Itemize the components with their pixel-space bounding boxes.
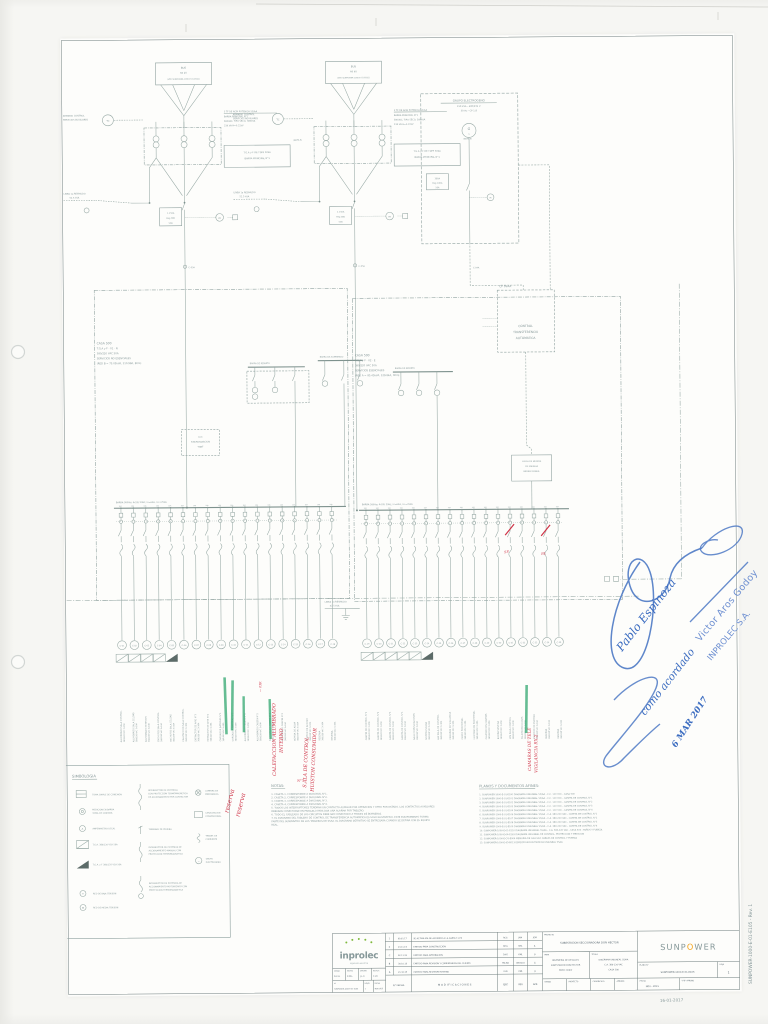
tap-rating: 10A xyxy=(448,506,452,509)
svg-text:380/220 VAC 3x10A: 380/220 VAC 3x10A xyxy=(452,720,455,740)
panel-right: CASA 500 T.G.A y F - 02 - E 380/220 VAC … xyxy=(352,296,622,601)
svg-text:Wh: Wh xyxy=(388,216,391,218)
svg-text:EJEC: EJEC xyxy=(503,983,508,986)
svg-text:VIGILANCIA RX-2: VIGILANCIA RX-2 xyxy=(533,734,538,773)
svg-text:380/220 VAC 3x10A: 380/220 VAC 3x10A xyxy=(135,723,138,743)
svg-text:Reg 380: Reg 380 xyxy=(166,218,175,220)
tap-rating: 10A xyxy=(330,503,334,506)
drawing-title: DIAGRAMA UNILINEAL SS/AA xyxy=(599,958,629,961)
drawing-sheet: BUS 66 kV (VER SUNPOWER-1000-E-01-E001) … xyxy=(60,33,742,996)
tap-rating: 10A xyxy=(400,506,404,509)
svg-text:21.10.15: 21.10.15 xyxy=(398,972,408,974)
svg-text:R.C.G.: R.C.G. xyxy=(334,976,341,978)
bus-name: BUS xyxy=(351,64,357,68)
feeder-id: C-18 xyxy=(330,644,335,646)
svg-text:0: 0 xyxy=(389,946,391,949)
feeder-id: C-05 xyxy=(169,645,174,647)
svg-text:50A: 50A xyxy=(435,186,440,189)
feeder-load-label: SISTEMA SCADA xyxy=(425,722,428,740)
bus-right-label: BARRA 380Vac 4x50/ 50Hz, In=63A, Icc=25k… xyxy=(362,503,413,506)
svg-text:380/220 VAC 3x10A: 380/220 VAC 3x10A xyxy=(148,722,151,742)
feeder-load-label: CASETA DE CONTROL N°3 xyxy=(389,711,392,740)
svg-text:JGM: JGM xyxy=(532,937,537,939)
feeder-load-label: ENCHUFES SALA CONTROL xyxy=(157,712,160,742)
svg-text:JL: JL xyxy=(533,954,537,956)
cable-tag: C-05A xyxy=(359,265,366,268)
svg-text:LINEA 1a RESPALDO: LINEA 1a RESPALDO xyxy=(325,600,347,603)
svg-text:50A: 50A xyxy=(339,220,344,223)
tap-rating: 10A xyxy=(156,504,160,507)
scan-artifact-line xyxy=(256,4,768,7)
feeder-load-label: ALUMBRADO SALA CELDAS xyxy=(132,712,135,742)
handwritten-reserva-2: reserva xyxy=(234,792,248,818)
svg-text:PROYECTO: PROYECTO xyxy=(544,934,554,936)
svg-text:PROTECCION TERMOMAGNETICA: PROTECCION TERMOMAGNETICA xyxy=(149,889,184,892)
svg-text:380/220 VAC 3x10A: 380/220 VAC 3x10A xyxy=(334,721,337,741)
tap-rating: 10A xyxy=(496,506,500,509)
feeder-load-label: TELEPROTECCIONES xyxy=(521,716,524,739)
svg-text:N° FECHA: N° FECHA xyxy=(393,984,405,987)
svg-text:380/220 VAC 3x10A: 380/220 VAC 3x10A xyxy=(464,720,467,740)
svg-text:FECHA: FECHA xyxy=(640,980,647,983)
planos-title: PLANOS Y DOCUMENTOS AFINES: xyxy=(479,784,539,788)
generator-cable-tag: C-04A xyxy=(473,266,480,269)
svg-text:1.150A: 1.150A xyxy=(167,212,175,215)
svg-text:Reg 100A: Reg 100A xyxy=(432,182,443,185)
feeder-id: C-07 xyxy=(194,645,199,647)
control-cabinet-label: ARMARIO CONTROL xyxy=(233,113,255,116)
svg-text:380/220 VAC 3x10A: 380/220 VAC 3x10A xyxy=(123,723,126,743)
svg-text:380/220 VAC 3x10A: 380/220 VAC 3x10A xyxy=(321,721,324,741)
tap-rating: 10A xyxy=(119,505,123,508)
svg-text:JL: JL xyxy=(533,962,537,964)
svg-text:INTERNO: INTERNO xyxy=(279,728,285,754)
svg-text:SUNPOWER: SUNPOWER xyxy=(660,942,717,952)
svg-text:AMPERIMETRO LOCAL: AMPERIMETRO LOCAL xyxy=(92,827,116,830)
svg-text:380/220 VAC 3x10A: 380/220 VAC 3x10A xyxy=(197,722,200,742)
plano-line: 12. SUNPOWER-1000-E-CG-E004 MEMORIA DE C… xyxy=(480,837,578,841)
note-line: REAL. xyxy=(271,824,278,827)
tap-rating: 10A xyxy=(520,506,524,509)
tga-box xyxy=(394,144,460,167)
handwritten-calefaccion: CALEFACCION ALUMBRADO xyxy=(271,703,278,776)
notes-section: NOTAS: 1. CASETA 1, CORRESPONDE A DIAGON… xyxy=(271,783,435,827)
svg-text:380/220 VAC 3x10A: 380/220 VAC 3x10A xyxy=(548,719,551,739)
tap-rating: 10A xyxy=(532,505,536,508)
feeder-load-label: ILUMINACION PERIMETRAL xyxy=(473,710,476,740)
svg-text:KLB: KLB xyxy=(504,971,508,973)
svg-text:ANGULO: ANGULO xyxy=(516,961,525,964)
svg-text:ACCIONAMIENTO MANUAL CON: ACCIONAMIENTO MANUAL CON xyxy=(149,849,182,852)
svg-text:380/220 VAC 3x10A: 380/220 VAC 3x10A xyxy=(428,720,431,740)
svg-text:30.10.15: 30.10.15 xyxy=(398,963,408,965)
tap-rating: 10A xyxy=(243,504,247,507)
feeder-load-label: ALUMBRADO CASETA N°2 xyxy=(256,713,259,742)
feeder-id: C-24 xyxy=(425,643,430,645)
feeder-load-label: CALEFACCION CASETAS xyxy=(485,713,488,739)
svg-text:C: C xyxy=(389,954,391,957)
svg-text:T: T xyxy=(82,893,84,896)
svg-text:APR: APR xyxy=(533,983,538,986)
punch-hole xyxy=(12,656,25,669)
feeder-id: C-30 xyxy=(497,643,502,645)
svg-text:MEDICION EN BARRA: MEDICION EN BARRA xyxy=(92,808,114,811)
svg-text:NOV.2015: NOV.2015 xyxy=(375,988,383,990)
tap-rating: 10A xyxy=(218,504,222,507)
svg-text:09.01.17: 09.01.17 xyxy=(398,938,408,940)
tap-rating: 10A xyxy=(472,506,476,509)
feeder-load-label: CAMARAS DE VIGILANCIA xyxy=(449,711,452,739)
respaldo-label: LINEA 1a RESPALDO xyxy=(233,191,255,194)
svg-text:G: G xyxy=(468,127,471,131)
svg-text:CONTROL: CONTROL xyxy=(518,324,533,328)
feeder-id: C-04 xyxy=(157,645,162,647)
tga-filled-symbol xyxy=(421,652,433,660)
svg-text:380/220 VAC 3x10A: 380/220 VAC 3x10A xyxy=(476,720,479,740)
svg-text:CONVENCIONAL: CONVENCIONAL xyxy=(205,815,222,818)
svg-text:380/220 VAC 3x10A: 380/220 VAC 3x10A xyxy=(368,721,371,741)
feeder-id: C-23 xyxy=(413,643,418,645)
svg-text:LCC: LCC xyxy=(198,436,203,439)
transformer-branch-1: BUS 66 kV (VER SUNPOWER-1000-E-01-E001) … xyxy=(62,62,303,271)
tap-rating: 10A xyxy=(544,505,548,508)
svg-text:TRANSF. DE: TRANSF. DE xyxy=(206,834,218,837)
feeder-id: C-29 xyxy=(485,643,490,645)
handwritten-camaras: CAMARAS DE TELE xyxy=(527,728,532,771)
tap-rating: 10A xyxy=(388,507,392,510)
nota-tag: (NOTA 5) xyxy=(463,137,472,140)
svg-text:CON PROTECCION TERMOMAGNETICA: CON PROTECCION TERMOMAGNETICA xyxy=(148,792,188,795)
cable-tag: C-05A xyxy=(189,266,196,269)
tap-rating: 10A xyxy=(268,504,272,507)
svg-text:BIDIRECCIONAL: BIDIRECCIONAL xyxy=(524,470,541,473)
tga-filled-symbol xyxy=(166,654,178,662)
feeder-id: C-09 xyxy=(219,645,224,647)
svg-text:BARRA DE REPARTO: BARRA DE REPARTO xyxy=(395,367,415,370)
feeder-id: C-27 xyxy=(461,643,466,645)
svg-text:PROTECCION TERMOMAGNETICA: PROTECCION TERMOMAGNETICA xyxy=(149,853,184,856)
svg-text:52.5 kVA: 52.5 kVA xyxy=(239,195,249,198)
svg-text:A: A xyxy=(82,828,84,831)
svg-text:380/220 VAC 3x10A: 380/220 VAC 3x10A xyxy=(440,720,443,740)
feeder-id: C-25 xyxy=(437,643,442,645)
svg-text:380/220 VAC 3x10A: 380/220 VAC 3x10A xyxy=(380,721,383,741)
svg-text:PROYECTO: PROYECTO xyxy=(569,981,579,983)
svg-text:PARA: PARA xyxy=(544,953,549,956)
feeder-id: C-08 xyxy=(206,645,211,647)
svg-text:150 kVA - 400/231 V: 150 kVA - 400/231 V xyxy=(457,105,481,108)
svg-text:C.A. 380-220 VAC: C.A. 380-220 VAC xyxy=(604,963,623,966)
feeder-load-label: ENCHUFES SALA CELDAS xyxy=(169,714,172,742)
svg-text:BARRA PRINCIPAL N°1: BARRA PRINCIPAL N°1 xyxy=(415,156,441,159)
svg-text:JL: JL xyxy=(533,946,537,948)
svg-text:(RED A = 85.45kVA, 129.84A, 30: (RED A = 85.45kVA, 129.84A, 30m) xyxy=(355,373,400,377)
svg-text:BARRA DE ALUMBRADO: BARRA DE ALUMBRADO xyxy=(320,355,344,358)
svg-text:2.150A: 2.150A xyxy=(337,210,345,213)
handwritten-03r: — 03R xyxy=(258,681,262,692)
cp-ssaa-tag: CP SSAA xyxy=(499,284,511,288)
svg-text:66 kV: 66 kV xyxy=(350,70,357,73)
feeder-id: C-01 xyxy=(120,645,125,647)
svg-text:APROBO: APROBO xyxy=(360,969,368,972)
tap-rating: 10A xyxy=(508,506,512,509)
svg-text:02.11.15: 02.11.15 xyxy=(398,955,408,957)
feeder-load-label: CASETA DE CONTROL N°2 xyxy=(377,711,380,740)
feeder-id: C-32 xyxy=(521,642,526,644)
tap-rating: 10A xyxy=(317,503,321,506)
handwritten-sp: SP. xyxy=(504,550,510,555)
svg-text:JAM: JAM xyxy=(517,936,522,939)
svg-text:RCG: RCG xyxy=(503,937,508,939)
tap-rating: 10A xyxy=(424,506,428,509)
svg-text:~: ~ xyxy=(198,860,200,863)
svg-text:N°: N° xyxy=(334,983,336,985)
generator-section: GRUPO ELECTROGENO 150 kVA - 400/231 V 50… xyxy=(421,93,551,291)
svg-text:T.G.A y F - 01 - N: T.G.A y F - 01 - N xyxy=(97,346,118,350)
svg-text:PATIO 220kV: PATIO 220kV xyxy=(559,969,573,972)
svg-text:B: B xyxy=(389,962,391,965)
feeder-id: C-11 xyxy=(244,644,249,646)
transformer-branch-1: BUS 66 kV (VER SUNPOWER-1000-E-01-E001) … xyxy=(232,60,473,269)
feeder-load-label: CASETA DE CONTROL N°1 xyxy=(365,711,368,740)
svg-text:PALMA: PALMA xyxy=(502,962,509,965)
feeder-id: C-17 xyxy=(318,644,323,646)
feeder-id: C-35 xyxy=(557,642,562,644)
svg-text:1: 1 xyxy=(728,970,730,974)
feeder-load-label: BOMBA DE AGUA xyxy=(293,722,296,741)
svg-text:JL: JL xyxy=(533,971,537,973)
control-cabinet-label: ARMARIO CONTROL xyxy=(63,114,85,117)
feeder-load-label: RESERVA xyxy=(318,730,321,740)
svg-text:(VER SUNPOWER-1000-E-01-E001): (VER SUNPOWER-1000-E-01-E001) xyxy=(337,77,370,79)
svg-text:380/220 VAC 3x10A: 380/220 VAC 3x10A xyxy=(296,721,299,741)
svg-text:380/220 VAC 3x10A: 380/220 VAC 3x10A xyxy=(512,720,515,740)
feeder-id: C-20 xyxy=(377,643,382,645)
svg-text:CANALIZACION: CANALIZACION xyxy=(205,811,221,814)
svg-text:380/220 VAC 3x10A: 380/220 VAC 3x10A xyxy=(259,722,262,742)
feeder-id: C-15 xyxy=(293,644,298,646)
svg-text:ACCIONAMIENTO MOTORIZADO CON: ACCIONAMIENTO MOTORIZADO CON xyxy=(149,885,188,888)
svg-text:(VER SUNPOWER-1000-E-01-E001): (VER SUNPOWER-1000-E-01-E001) xyxy=(167,79,200,81)
plano-line: 13. SUNPOWER-1000-E-05-E013 ESPECIFICACI… xyxy=(480,841,564,845)
svg-text:M: M xyxy=(82,907,84,910)
svg-text:DIBUJO: DIBUJO xyxy=(545,981,552,983)
svg-text:380/220 VAC 3x10A: 380/220 VAC 3x10A xyxy=(172,722,175,742)
punch-hole xyxy=(12,346,25,359)
svg-text:1:20: 1:20 xyxy=(373,976,378,978)
cp-ssaa-box: CP SSAA CONTROL TRANSFERENCIA AUTOMATICA xyxy=(482,284,555,456)
svg-text:52.5 kVA: 52.5 kVA xyxy=(330,604,340,607)
svg-text:SUBESTACION DON HECTOR: SUBESTACION DON HECTOR xyxy=(551,964,581,967)
svg-text:DIBUJO: DIBUJO xyxy=(334,970,340,972)
tap-rating: 10A xyxy=(280,503,284,506)
svg-text:CUADRICULA: CUADRICULA xyxy=(593,980,606,983)
tap-rating: 10A xyxy=(255,504,259,507)
svg-text:RED DE BAJA TENSION: RED DE BAJA TENSION xyxy=(93,892,117,895)
svg-text:SERVICIOS AUXILIARES: SERVICIOS AUXILIARES xyxy=(233,117,259,120)
feeder-load-label: A/A SALA DE CONTROL xyxy=(437,714,440,740)
tap-rating: 10A xyxy=(364,507,368,510)
legend-title: SIMBOLOGIA xyxy=(72,773,96,778)
svg-text:380/220 VAC 3x10A: 380/220 VAC 3x10A xyxy=(247,722,250,742)
tap-rating: 10A xyxy=(556,505,560,508)
feeder-load-label: RESERVA xyxy=(557,728,560,738)
svg-text:(RED B = 73.05kVA, 110.98A, 80: (RED B = 73.05kVA, 110.98A, 80m) xyxy=(97,361,142,365)
svg-text:V°B° APROBO: V°B° APROBO xyxy=(682,979,695,982)
svg-text:SINCRONIZACION: SINCRONIZACION xyxy=(191,440,211,443)
svg-text:380/220 VAC 3x10A: 380/220 VAC 3x10A xyxy=(222,722,225,742)
project-title: SUBESTACION SECCIONADORA DON HECTOR xyxy=(560,940,619,944)
bus-left-label: BARRA 380Vac 4x50/ 50Hz, In=63A, Icc=25k… xyxy=(116,501,167,504)
svg-text:SERVICIOS ESENCIALES: SERVICIOS ESENCIALES xyxy=(355,368,385,372)
feeder-load-label: EXTRACTOR DE AIRE N°2 xyxy=(207,713,210,741)
scanned-drawing-page: { "meta": { "corner_date": "16-01-2017",… xyxy=(0,0,768,1024)
feeder-id: C-16 xyxy=(306,644,311,646)
svg-text:T.G.A y F DE TDPF 50kA: T.G.A y F DE TDPF 50kA xyxy=(244,151,272,154)
revision-description: EMITIDO PARA REVISION INTERNA xyxy=(414,970,450,973)
tap-rating: 10A xyxy=(305,503,309,506)
feeder-load-label: EXTRACTOR DE AIRE N°1 xyxy=(194,714,197,742)
svg-text:FECHA: FECHA xyxy=(375,982,381,985)
tap-rating: 10A xyxy=(168,504,172,507)
svg-text:DE ENERGIA: DE ENERGIA xyxy=(525,465,538,468)
feeders-right: 10AC-19CASETA DE CONTROL N°1380/220 VAC … xyxy=(360,505,565,740)
tap-rating: 10A xyxy=(131,505,135,508)
svg-text:~: ~ xyxy=(468,132,471,136)
feeder-id: C-22 xyxy=(401,643,406,645)
panel-left: CASA 500 T.G.A y F - 01 - N 380/220 VAC … xyxy=(94,288,364,600)
feeder-id: C-02 xyxy=(132,645,137,647)
svg-text:SERVICIOS AUXILIARES: SERVICIOS AUXILIARES xyxy=(63,118,89,121)
svg-text:50A: 50A xyxy=(169,222,174,225)
feeder-id: C-13 xyxy=(268,644,273,646)
svg-text:TC: TC xyxy=(106,120,109,123)
feeder-id: C-03 xyxy=(144,645,149,647)
feeder-load-label: CARGADOR BATERIAS N°1 xyxy=(219,712,222,741)
feeder-id: C-33 xyxy=(533,642,538,644)
sunpower-logo: SUNPOWER xyxy=(660,942,717,952)
revision-description: EMITIDO PARA CONSTRUCCION xyxy=(413,945,446,948)
engineering-drawing: BUS 66 kV (VER SUNPOWER-1000-E-01-E001) … xyxy=(60,33,742,996)
tap-rating: 10A xyxy=(193,504,197,507)
title-block: 109.01.17SE ACTUALIZA DE ACUERDO A LA CA… xyxy=(332,930,739,992)
svg-text:ELECTROGENO: ELECTROGENO xyxy=(206,862,222,864)
svg-text:LLEGA DE MEDIDA: LLEGA DE MEDIDA xyxy=(522,460,542,463)
svg-text:50 Hz - CP 1.8: 50 Hz - CP 1.8 xyxy=(461,109,478,112)
feeder-id: C-10 xyxy=(231,645,236,647)
svg-text:T.G.A. 380/220 VCA 50A: T.G.A. 380/220 VCA 50A xyxy=(93,843,119,846)
svg-text:LAMPARA DE: LAMPARA DE xyxy=(205,789,219,792)
svg-text:RED DE MEDIA TENSION: RED DE MEDIA TENSION xyxy=(93,906,119,909)
svg-text:TGBT: TGBT xyxy=(198,446,205,449)
svg-text:380/220 VAC 3x10A: 380/220 VAC 3x10A xyxy=(160,722,163,742)
tap-rating: 10A xyxy=(376,507,380,510)
svg-text:1: 1 xyxy=(389,937,391,940)
revision-table: 109.01.17SE ACTUALIZA DE ACUERDO A LA CA… xyxy=(389,936,538,974)
svg-text:ESCALA: ESCALA xyxy=(373,969,380,972)
transformer-branch-2: BUS 66 kV (VER SUNPOWER-1000-E-01-E001) … xyxy=(232,60,473,269)
svg-text:M: M xyxy=(490,197,492,199)
svg-text:Reg 380: Reg 380 xyxy=(336,216,345,218)
side-code: SUNPOWER-1000-E-01-E105 - Rev. 1 xyxy=(748,904,754,984)
svg-text:DHG: DHG xyxy=(503,946,508,948)
feeder-load-label: RESERVA xyxy=(331,730,334,740)
svg-text:TC: TC xyxy=(276,118,279,121)
tap-rating: 10A xyxy=(206,504,210,507)
feeder-id: C-31 xyxy=(509,642,514,644)
svg-text:380/220 VAC 3x10A: 380/220 VAC 3x10A xyxy=(185,722,188,742)
svg-text:CASA 500: CASA 500 xyxy=(608,968,619,971)
svg-text:J.L.C.: J.L.C. xyxy=(359,976,365,978)
feeder-id: C-19 xyxy=(365,644,370,646)
feeder-load-label: UPS SALA CONTROL xyxy=(509,716,512,739)
svg-text:KML: KML xyxy=(519,971,524,973)
svg-text:T.G.A y F - 02 - E: T.G.A y F - 02 - E xyxy=(355,358,376,362)
svg-text:KML: KML xyxy=(518,946,523,948)
svg-text:T.G.A y F DE TDPF 50kA: T.G.A y F DE TDPF 50kA xyxy=(414,150,442,153)
svg-text:380/220 VAC 50A: 380/220 VAC 50A xyxy=(355,363,377,367)
drawing-number: SUNPOWER-1000-E-01-E105 xyxy=(661,971,695,974)
feeder-load-label: RESERVA xyxy=(545,728,548,738)
respaldo-label: LINEA 1a RESPALDO xyxy=(63,192,85,195)
bypass-label: LINEA 1a RESPALDO 52.5 kVA xyxy=(325,600,360,619)
note-line: PARTE DEL SUMINISTRO DE LOS TABLEROS DE … xyxy=(271,819,430,823)
revision-description: EMITIDO PARA REVISION Y COMENTARIOS DEL … xyxy=(414,962,472,965)
svg-text:REV: REV xyxy=(518,983,523,986)
feeder-load-label: SALA COMUNICACIONES xyxy=(413,713,416,740)
tga-filled-symbol xyxy=(77,860,89,868)
feeder-id: C-14 xyxy=(281,644,286,646)
svg-text:380/220 VAC 3x10A: 380/220 VAC 3x10A xyxy=(404,720,407,740)
svg-text:380/220 VAC 3x10A: 380/220 VAC 3x10A xyxy=(392,721,395,741)
plano-line: 10. SUNPOWER-1000-E-01-E110 DIAGRAMA UNI… xyxy=(479,828,602,832)
svg-text:M O D I F I C A C I O N E S: M O D I F I C A C I O N E S xyxy=(438,982,472,986)
revision-description: SE ACTUALIZA DE ACUERDO A LA CARTA T-229 xyxy=(413,937,462,940)
svg-text:DHG: DHG xyxy=(503,954,508,956)
svg-text:AUTOMATICA: AUTOMATICA xyxy=(516,336,537,340)
feeder-id: C-34 xyxy=(545,642,550,644)
feeder-load-label: ALUMBRADO SALA CONTROL xyxy=(120,710,123,742)
svg-text:TOMA SIMPLE DE CONEXION: TOMA SIMPLE DE CONEXION xyxy=(92,793,122,796)
tap-rating: 10A xyxy=(412,506,416,509)
tap-rating: 10A xyxy=(144,504,148,507)
svg-text:380/220 VAC 3x10A: 380/220 VAC 3x10A xyxy=(234,722,237,742)
feeder-load-label: CASETA DE CONTROL N°4 xyxy=(401,711,404,740)
svg-text:INTERRUPTOR DE POTENCIA DE: INTERRUPTOR DE POTENCIA DE xyxy=(149,846,183,849)
svg-text:SUNPOWER-1000-E-01-E105: SUNPOWER-1000-E-01-E105 xyxy=(334,988,358,990)
svg-text:GRUPO: GRUPO xyxy=(206,858,214,860)
svg-text:66 kV: 66 kV xyxy=(180,72,187,75)
panel-left-title: CASA 500 xyxy=(97,341,112,345)
inprolec-logo: inprolec ingenieria electrica xyxy=(339,938,378,965)
svg-text:REVISO: REVISO xyxy=(347,970,354,972)
tap-rating: 10A xyxy=(230,504,234,507)
svg-text:380/220 VAC 3x10A: 380/220 VAC 3x10A xyxy=(560,719,563,739)
planos-section: PLANOS Y DOCUMENTOS AFINES: 1. SUNPOWER-… xyxy=(479,783,603,844)
svg-text:23.11.15: 23.11.15 xyxy=(398,947,408,949)
svg-text:INGENIERIA DE DETALLES: INGENIERIA DE DETALLES xyxy=(552,959,579,962)
svg-text:SERVICIOS NO ESENCIALES: SERVICIOS NO ESENCIALES xyxy=(97,356,131,360)
tga-box xyxy=(224,145,290,168)
bus-name: BUS xyxy=(181,66,187,70)
svg-text:380/220 VAC 3x10A: 380/220 VAC 3x10A xyxy=(210,722,213,742)
svg-text:23K VA H=0.22kV: 23K VA H=0.22kV xyxy=(224,124,244,127)
svg-text:BARRA PRINCIPAL N°1: BARRA PRINCIPAL N°1 xyxy=(245,157,271,160)
svg-text:inprolec: inprolec xyxy=(340,951,379,961)
feeder-load-label: CALEFACCION SALA CONTROL xyxy=(182,708,185,742)
legend-box: SIMBOLOGIA A T M ~ TOMA SIMPLE DE CONEXI… xyxy=(60,764,230,938)
panel-right-title: CASA 500 xyxy=(355,353,370,357)
